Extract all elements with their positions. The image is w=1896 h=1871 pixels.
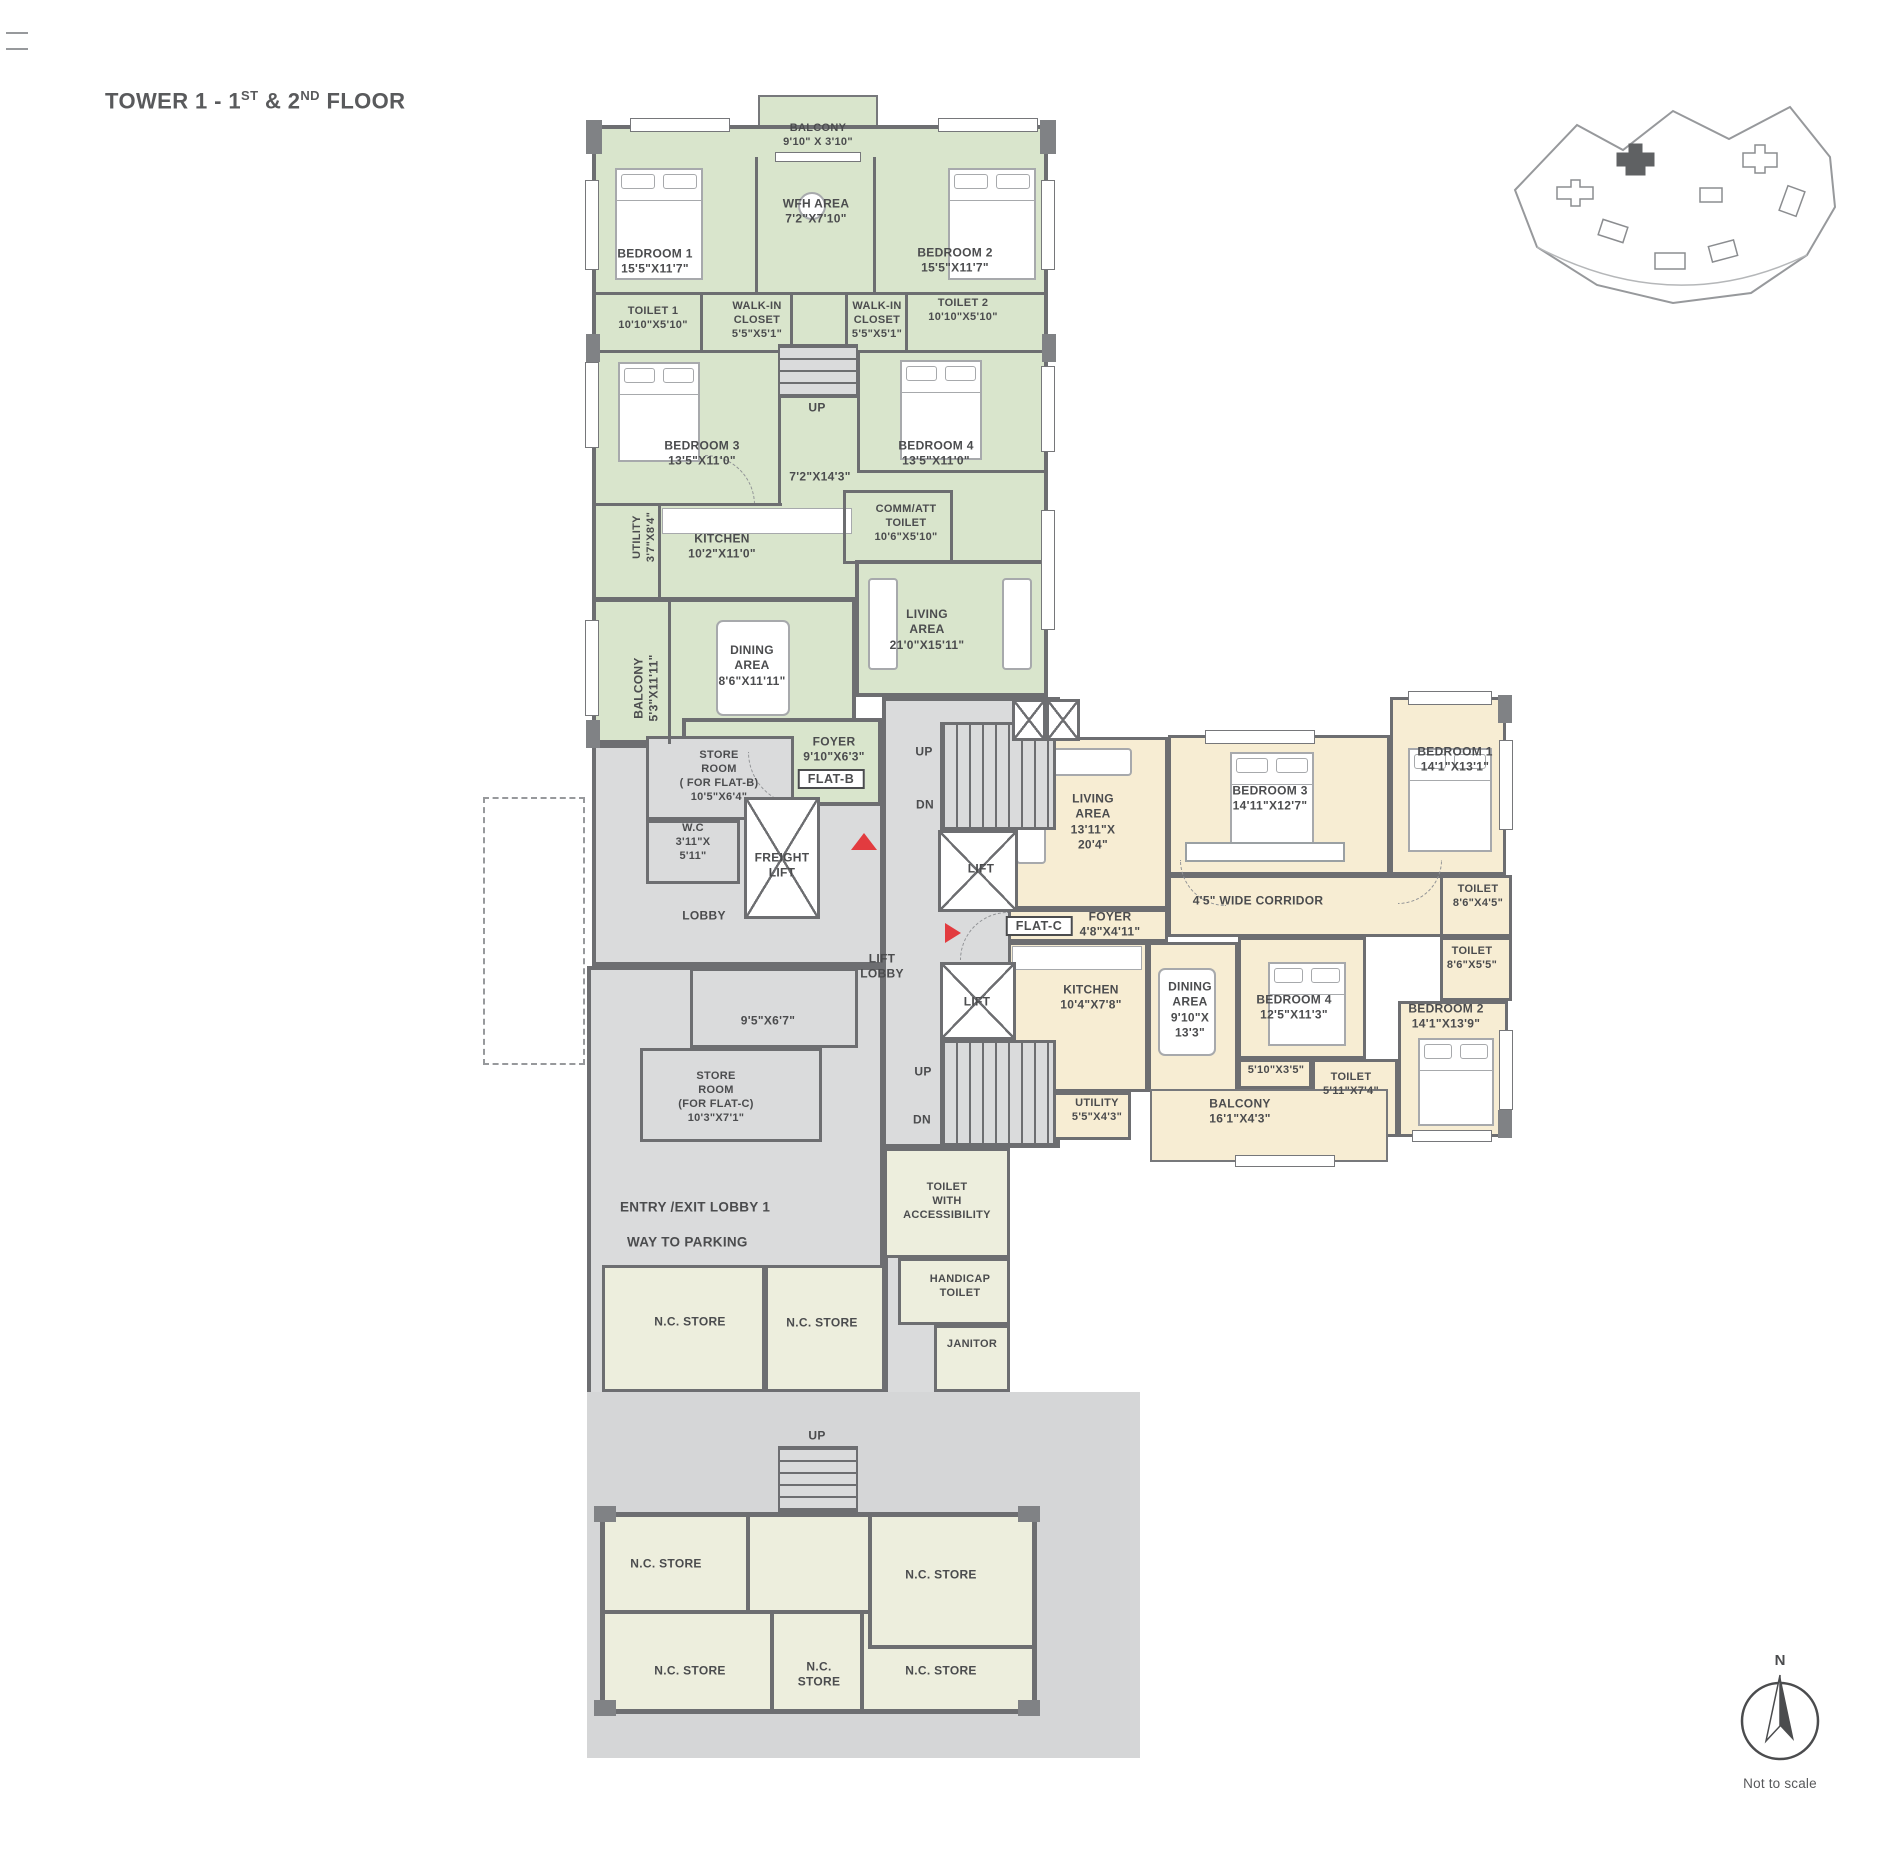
compass-rose-icon — [1732, 1669, 1828, 1765]
compass-n-label: N — [1724, 1652, 1836, 1669]
not-to-scale-label: Not to scale — [1724, 1776, 1836, 1791]
window — [1412, 1130, 1492, 1142]
window — [585, 362, 599, 448]
room-dim: 8'6"X4'5" — [1453, 896, 1503, 910]
room-name: BEDROOM 2 — [1408, 1002, 1483, 1017]
room-name: TOILET — [874, 516, 937, 530]
wall — [868, 1645, 1032, 1649]
room-dim: 10'6"X5'10" — [874, 530, 937, 544]
label-living-flatc: LIVINGAREA13'11"X20'4" — [1071, 791, 1116, 852]
room-dim: 5'11" — [676, 849, 711, 863]
column — [586, 334, 600, 362]
label-comm-att-toilet: COMM/ATTTOILET10'6"X5'10" — [874, 502, 937, 544]
label-up-entry-stair: UP — [808, 1428, 825, 1443]
room-small-lobby — [690, 968, 858, 1048]
flatb-tag: FLAT-B — [798, 769, 865, 789]
room-name: LOBBY — [860, 967, 904, 982]
label-up-stair2: UP — [914, 1064, 931, 1079]
label-wc: W.C3'11"X5'11" — [676, 821, 711, 863]
room-name: BALCONY — [783, 121, 853, 135]
label-way-to-parking: WAY TO PARKING — [627, 1233, 748, 1250]
label-toilet-b-flatc: TOILET8'6"X5'5" — [1447, 944, 1497, 972]
label-utility-flatb: UTILITY3'7"X8'4" — [630, 512, 658, 562]
room-name: LIVING — [1071, 791, 1116, 806]
label-foyer-flatc: FOYER4'8"X4'11" — [1080, 910, 1141, 941]
room-name: CLOSET — [852, 313, 902, 327]
window — [1408, 691, 1492, 705]
room-name: AREA — [1071, 807, 1116, 822]
room-name: KITCHEN — [688, 532, 756, 547]
room-name: ACCESSIBILITY — [903, 1208, 991, 1222]
room-name: BEDROOM 1 — [1417, 745, 1492, 760]
label-nc-store: N.C. STORE — [654, 1314, 725, 1329]
label-lift-1: LIFT — [968, 861, 995, 876]
label-dn-stair1: DN — [916, 797, 934, 812]
wall — [857, 350, 1048, 353]
room-dim: 15'5"X11'7" — [917, 261, 992, 276]
column — [586, 720, 600, 748]
label-balcony-side-flatb: BALCONY5'3"X11'11" — [632, 654, 663, 721]
room-name: BEDROOM 3 — [664, 439, 739, 454]
room-dim: 10'10"X5'10" — [928, 310, 997, 324]
room-name: BEDROOM 1 — [617, 247, 692, 262]
room-name: LIVING — [890, 607, 965, 622]
window — [1499, 1030, 1513, 1110]
room-name: (FOR FLAT-C) — [678, 1097, 754, 1111]
label-bedroom1-flatb: BEDROOM 115'5"X11'7" — [617, 247, 692, 278]
page-title: TOWER 1 - 1ST & 2ND FLOOR — [105, 88, 405, 114]
room-name: ( FOR FLAT-B) — [680, 776, 759, 790]
label-bedroom3-flatc: BEDROOM 314'11"X12'7" — [1232, 784, 1307, 815]
label-up-stair1: UP — [915, 744, 932, 759]
room-name: AREA — [718, 658, 785, 673]
room-name: FREIGHT — [755, 851, 810, 866]
room-dim: 10'4"X7'8" — [1060, 998, 1121, 1013]
wall — [790, 292, 793, 350]
room-name: STORE — [798, 1675, 841, 1690]
room-dim: 5'5"X4'3" — [1072, 1110, 1122, 1124]
room-name: BEDROOM 4 — [898, 439, 973, 454]
column — [594, 1506, 616, 1522]
room-name: TOILET — [930, 1286, 990, 1300]
label-store-room-flatc: STOREROOM(FOR FLAT-C)10'3"X7'1" — [678, 1069, 754, 1125]
stair-flatb-up — [778, 344, 858, 398]
room-name: DINING — [718, 643, 785, 658]
room-name: N.C. — [798, 1660, 841, 1675]
tick-mark — [6, 48, 28, 50]
stair-entry-up — [778, 1446, 858, 1512]
room-dim: 10'3"X7'1" — [678, 1111, 754, 1125]
label-walkin1-flatb: WALK-INCLOSET5'5"X5'1" — [732, 299, 782, 341]
room-dim: 5'5"X5'1" — [852, 327, 902, 341]
room-name: STORE — [678, 1069, 754, 1083]
column — [1018, 1700, 1040, 1716]
key-plan-buildings — [1557, 145, 1805, 269]
shaft-box — [1012, 699, 1046, 741]
room-dim: 9'10" X 3'10" — [783, 135, 853, 149]
label-passage-flatc: 5'10"X3'5" — [1248, 1063, 1305, 1077]
label-toilet1-flatb: TOILET 110'10"X5'10" — [618, 304, 687, 332]
window — [1499, 740, 1513, 830]
wall — [592, 292, 1048, 295]
room-name: WALK-IN — [732, 299, 782, 313]
room-dim: 14'1"X13'1" — [1417, 760, 1492, 775]
label-toilet2-flatb: TOILET 210'10"X5'10" — [928, 296, 997, 324]
label-bedroom4-flatc: BEDROOM 412'5"X11'3" — [1256, 993, 1331, 1024]
room-dim: 10'2"X11'0" — [688, 547, 756, 562]
compass: N Not to scale — [1724, 1652, 1836, 1791]
room-name: COMM/ATT — [874, 502, 937, 516]
room-dim: 12'5"X11'3" — [1256, 1008, 1331, 1023]
wall — [700, 292, 703, 350]
label-freight-lift: FREIGHTLIFT — [755, 851, 810, 882]
title-sup: ND — [300, 88, 320, 103]
label-lobby: LOBBY — [682, 908, 726, 923]
flatb-entry-marker-icon — [851, 833, 877, 850]
room-dim: 3'11"X — [676, 835, 711, 849]
window — [585, 620, 599, 716]
label-bedroom1-flatc: BEDROOM 114'1"X13'1" — [1417, 745, 1492, 776]
room-name: TOILET — [1447, 944, 1497, 958]
wall — [746, 1517, 750, 1613]
room-name: UTILITY — [1072, 1096, 1122, 1110]
room-name: KITCHEN — [1060, 983, 1121, 998]
label-handicap-toilet: HANDICAPTOILET — [930, 1272, 990, 1300]
label-kitchen-flatc: KITCHEN10'4"X7'8" — [1060, 983, 1121, 1014]
wall — [868, 1517, 872, 1648]
room-name: ROOM — [680, 762, 759, 776]
room-dim: 5'5"X5'1" — [732, 327, 782, 341]
label-bedroom3-flatb: BEDROOM 313'5"X11'0" — [664, 439, 739, 470]
label-nc-store: N.C. STORE — [786, 1315, 857, 1330]
label-bedroom4-flatb: BEDROOM 413'5"X11'0" — [898, 439, 973, 470]
room-name: TOILET — [1323, 1070, 1379, 1084]
window — [775, 152, 861, 162]
label-kitchen-flatb: KITCHEN10'2"X11'0" — [688, 532, 756, 563]
column — [586, 120, 602, 154]
window — [1041, 510, 1055, 630]
room-dim: 20'4" — [1071, 837, 1116, 852]
label-balcony-flatc: BALCONY16'1"X4'3" — [1209, 1097, 1270, 1128]
room-dim: 9'10"X — [1168, 1010, 1212, 1025]
flatc-tag: FLAT-C — [1006, 916, 1073, 936]
wall — [658, 505, 661, 600]
room-dim: 9'10"X6'3" — [803, 750, 864, 765]
title-sup: ST — [241, 88, 258, 103]
label-living-flatb: LIVINGAREA21'0"X15'11" — [890, 607, 965, 653]
room-name: ROOM — [678, 1083, 754, 1097]
label-nc-store: N.C. STORE — [905, 1567, 976, 1582]
title-text: TOWER 1 - 1 — [105, 88, 241, 113]
label-entry-exit-lobby: ENTRY /EXIT LOBBY 1 — [620, 1198, 770, 1215]
room-name: BEDROOM 4 — [1256, 993, 1331, 1008]
room-dim: 7'2"X7'10" — [783, 212, 850, 227]
label-balcony-top: BALCONY9'10" X 3'10" — [783, 121, 853, 149]
room-name: BALCONY — [1209, 1097, 1270, 1112]
title-text: FLOOR — [320, 88, 406, 113]
room-dim: 14'1"X13'9" — [1408, 1017, 1483, 1032]
label-small-lobby-dim: 9'5"X6'7" — [741, 1013, 796, 1028]
label-dn-stair2: DN — [913, 1112, 931, 1127]
column — [1018, 1506, 1040, 1522]
room-dim: 13'3" — [1168, 1025, 1212, 1040]
label-toilet-a-flatc: TOILET8'6"X4'5" — [1453, 882, 1503, 910]
room-name: BEDROOM 2 — [917, 246, 992, 261]
room-name: TOILET 1 — [618, 304, 687, 318]
wardrobe-icon — [1185, 842, 1345, 862]
room-dim: 13'5"X11'0" — [664, 454, 739, 469]
label-lift-lobby: LIFTLOBBY — [860, 952, 904, 983]
room-name: LIFT — [860, 952, 904, 967]
room-name: BALCONY — [632, 654, 647, 721]
column — [1498, 1110, 1512, 1138]
room-name: AREA — [890, 622, 965, 637]
kitchen-counter — [1012, 946, 1142, 970]
room-janitor — [934, 1325, 1010, 1392]
label-wfh-area: WFH AREA7'2"X7'10" — [783, 197, 850, 228]
label-toilet-c-flatc: TOILET5'11"X7'4" — [1323, 1070, 1379, 1098]
wall — [845, 292, 848, 350]
wall — [605, 1610, 870, 1614]
window — [1235, 1155, 1335, 1167]
room-name: TOILET — [1453, 882, 1503, 896]
room-name: WALK-IN — [852, 299, 902, 313]
label-toilet-accessibility: TOILETWITHACCESSIBILITY — [903, 1180, 991, 1222]
bed-icon — [1418, 1038, 1494, 1126]
room-dim: 10'5"X6'4" — [680, 790, 759, 804]
room-name: WFH AREA — [783, 197, 850, 212]
label-nc-store-small: N.C.STORE — [798, 1660, 841, 1691]
room-name: LIFT — [755, 866, 810, 881]
label-foyer-flatb: FOYER9'10"X6'3" — [803, 735, 864, 766]
label-corridor-flatc: 4'5" WIDE CORRIDOR — [1193, 893, 1324, 908]
kitchen-counter — [662, 508, 852, 534]
wall — [905, 292, 908, 350]
room-name: STORE — [680, 748, 759, 762]
room-name: WITH — [903, 1194, 991, 1208]
window — [1041, 366, 1055, 452]
window — [1205, 730, 1315, 744]
label-nc-store: N.C. STORE — [630, 1556, 701, 1571]
wall — [592, 350, 782, 353]
column — [594, 1700, 616, 1716]
wall — [873, 157, 876, 292]
label-nc-store: N.C. STORE — [654, 1663, 725, 1678]
room-dim: 13'11"X — [1071, 822, 1116, 837]
label-walkin2-flatb: WALK-INCLOSET5'5"X5'1" — [852, 299, 902, 341]
label-lift-2: LIFT — [964, 994, 991, 1009]
room-name: FOYER — [803, 735, 864, 750]
wall — [857, 470, 1048, 473]
room-name: TOILET 2 — [928, 296, 997, 310]
label-passage-flatb: 7'2"X14'3" — [789, 469, 850, 484]
window — [585, 180, 599, 270]
room-dim: 4'8"X4'11" — [1080, 925, 1141, 940]
floor-plan-canvas: TOWER 1 - 1ST & 2ND FLOOR — [0, 0, 1896, 1871]
room-name: UTILITY — [630, 512, 644, 562]
room-dim: 8'6"X5'5" — [1447, 958, 1497, 972]
column — [1498, 695, 1512, 723]
room-name: FOYER — [1080, 910, 1141, 925]
label-up-flatb: UP — [808, 400, 825, 415]
tick-mark — [6, 32, 28, 34]
window — [938, 118, 1038, 132]
wall — [592, 503, 782, 506]
flatc-entry-marker-icon — [945, 923, 961, 943]
room-dim: 21'0"X15'11" — [890, 638, 965, 653]
room-dim: 3'7"X8'4" — [644, 512, 658, 562]
window — [630, 118, 730, 132]
label-bedroom2-flatc: BEDROOM 214'1"X13'9" — [1408, 1002, 1483, 1033]
room-dim: 5'3"X11'11" — [647, 654, 662, 721]
room-name: CLOSET — [732, 313, 782, 327]
room-name: BEDROOM 3 — [1232, 784, 1307, 799]
room-dim: 14'11"X12'7" — [1232, 799, 1307, 814]
wall — [668, 600, 671, 744]
room-name: TOILET — [903, 1180, 991, 1194]
column — [1042, 334, 1056, 362]
room-dim: 16'1"X4'3" — [1209, 1112, 1270, 1127]
wall — [778, 398, 781, 505]
room-dim: 10'10"X5'10" — [618, 318, 687, 332]
room-dim: 15'5"X11'7" — [617, 262, 692, 277]
room-name: DINING — [1168, 979, 1212, 994]
room-name: HANDICAP — [930, 1272, 990, 1286]
room-dim: 13'5"X11'0" — [898, 454, 973, 469]
label-janitor: JANITOR — [947, 1337, 997, 1351]
label-nc-store: N.C. STORE — [905, 1663, 976, 1678]
title-text: & 2 — [258, 88, 300, 113]
column — [1040, 120, 1056, 154]
wall — [770, 1610, 774, 1710]
label-bedroom2-flatb: BEDROOM 215'5"X11'7" — [917, 246, 992, 277]
label-utility-flatc: UTILITY5'5"X4'3" — [1072, 1096, 1122, 1124]
wall — [755, 157, 758, 292]
label-dining-flatc: DININGAREA9'10"X13'3" — [1168, 979, 1212, 1040]
label-dining-flatb: DININGAREA8'6"X11'11" — [718, 643, 785, 689]
staircase-2 — [940, 1040, 1056, 1146]
room-dim: 8'6"X11'11" — [718, 674, 785, 689]
room-dim: 5'11"X7'4" — [1323, 1084, 1379, 1098]
wall — [860, 1610, 864, 1710]
label-store-room-flatb: STOREROOM( FOR FLAT-B)10'5"X6'4" — [680, 748, 759, 804]
dashed-open-area — [483, 797, 585, 1065]
key-plan — [1505, 95, 1845, 310]
sofa-icon — [1002, 578, 1032, 670]
window — [1041, 180, 1055, 270]
room-name: W.C — [676, 821, 711, 835]
room-name: AREA — [1168, 995, 1212, 1010]
shaft-box — [1046, 699, 1080, 741]
